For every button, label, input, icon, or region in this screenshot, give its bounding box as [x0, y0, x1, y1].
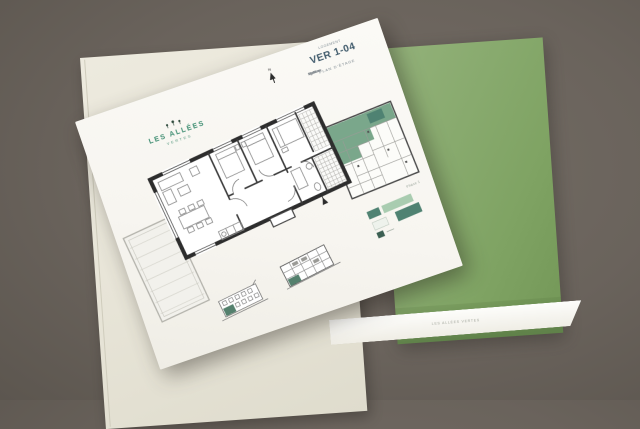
strip-label: LES ALLÉES VERTES [432, 319, 480, 326]
title-block: LOGEMENT VER 1-04 Type 3 pièces Surface … [288, 29, 381, 86]
north-arrow-tail [272, 79, 274, 83]
north-indicator: N [262, 65, 281, 87]
legend-blocks-svg [365, 186, 436, 240]
scene-background: LES ALLÉES VERTES LES ALLÉES VERTES N LO… [0, 0, 640, 400]
